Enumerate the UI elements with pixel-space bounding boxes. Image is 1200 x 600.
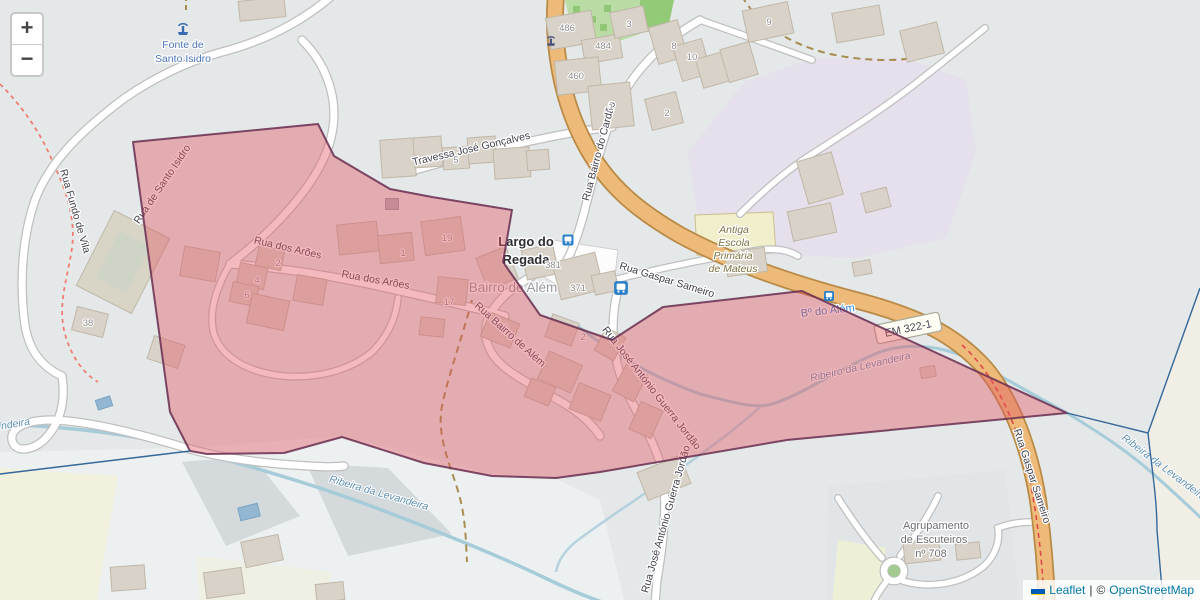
housenumber: 2 bbox=[664, 108, 669, 119]
place-label-largo: Regada bbox=[503, 252, 551, 267]
place-label-escuteiros: nº 708 bbox=[915, 548, 947, 560]
copyright-symbol: © bbox=[1096, 580, 1105, 600]
housenumber: 9 bbox=[766, 17, 771, 28]
housenumber: 381 bbox=[545, 260, 561, 271]
place-label-fonte: Fonte de bbox=[162, 39, 204, 51]
housenumber: 371 bbox=[570, 283, 586, 294]
housenumber: 5 bbox=[453, 155, 458, 166]
map-canvas[interactable]: Travessa José Gonçalves Rua Bairro do Ca… bbox=[0, 0, 1200, 600]
housenumber: 3 bbox=[626, 19, 631, 30]
place-label-escuteiros: de Escuteiros bbox=[901, 534, 968, 546]
housenumber: 460 bbox=[568, 71, 584, 82]
place-label-school: Antiga bbox=[718, 224, 749, 236]
bus-stop-icon bbox=[614, 281, 628, 295]
street-label: Rua Fundo de Vila bbox=[57, 168, 93, 255]
openstreetmap-link[interactable]: OpenStreetMap bbox=[1109, 580, 1194, 600]
fountain-icon bbox=[178, 24, 188, 35]
zoom-out-button[interactable]: − bbox=[12, 45, 42, 75]
leaflet-link[interactable]: Leaflet bbox=[1049, 580, 1085, 600]
pool bbox=[95, 396, 112, 410]
housenumber: 1 bbox=[608, 102, 613, 113]
attribution-separator: | bbox=[1089, 580, 1092, 600]
place-label-fonte: Santo Isidro bbox=[155, 53, 211, 65]
place-label-school: Escola bbox=[718, 237, 750, 249]
attribution-bar: Leaflet | © OpenStreetMap bbox=[1023, 580, 1200, 600]
housenumber: 486 bbox=[559, 23, 575, 34]
housenumber: 484 bbox=[595, 41, 611, 52]
housenumber: 38 bbox=[83, 318, 94, 329]
place-label-school: Primária bbox=[713, 250, 752, 262]
leaflet-map-app: Travessa José Gonçalves Rua Bairro do Ca… bbox=[0, 0, 1200, 600]
place-label-school: de Mateus bbox=[708, 263, 758, 275]
bus-stop-icon bbox=[563, 235, 574, 246]
water-label: ndeira bbox=[0, 416, 31, 433]
place-label-escuteiros: Agrupamento bbox=[903, 520, 969, 532]
bus-stop-icon bbox=[824, 291, 834, 301]
housenumber: 8 bbox=[671, 41, 676, 52]
ukraine-flag-icon bbox=[1031, 585, 1045, 595]
housenumber: 10 bbox=[687, 52, 698, 63]
zoom-in-button[interactable]: + bbox=[12, 14, 42, 45]
zoom-control: + − bbox=[10, 12, 44, 77]
